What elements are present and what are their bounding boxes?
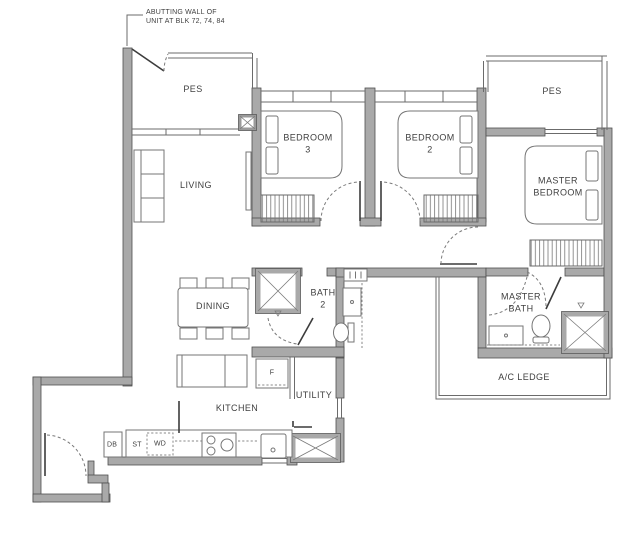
sofa [134, 150, 164, 222]
dining-chair [180, 278, 197, 289]
kitchen-sink [261, 434, 286, 458]
wardrobe-bedroom2 [424, 195, 478, 222]
pes-left-boundary [168, 53, 257, 88]
floor-trap-master-bath [578, 303, 584, 308]
pes-gate [132, 49, 168, 71]
bedroom2-door [381, 181, 420, 221]
room-label-ac-ledge: A/C LEDGE [498, 372, 550, 384]
utility-shaft [291, 434, 341, 463]
fixture-label-st: ST [132, 440, 141, 449]
room-label-pes-left: PES [183, 84, 202, 96]
fixture-label-db: DB [107, 440, 117, 449]
dining-chair [206, 278, 223, 289]
room-label-living: LIVING [180, 180, 212, 192]
floorplan-page: ABUTTING WALL OF UNIT AT BLK 72, 74, 84 … [0, 0, 640, 533]
bedroom3-door [321, 181, 360, 221]
floorplan-canvas [0, 0, 640, 533]
entrance-door [45, 433, 86, 476]
stove [202, 433, 236, 457]
room-label-bath2: BATH 2 [311, 287, 336, 310]
tv-console [246, 152, 251, 210]
room-label-bedroom2: BEDROOM 2 [405, 132, 454, 155]
room-label-bedroom3: BEDROOM 3 [283, 132, 332, 155]
room-label-dining: DINING [196, 301, 230, 313]
room-label-utility: UTILITY [296, 390, 332, 402]
mirror-cabinet [344, 269, 367, 281]
wall-duct-box [239, 115, 257, 131]
master-bedroom-door [440, 227, 478, 264]
fixture-label-wd: WD [154, 439, 166, 448]
room-label-master-bedroom: MASTER BEDROOM [533, 175, 582, 198]
bath2-door [268, 318, 313, 345]
toilet-bath2 [334, 323, 355, 342]
dining-chair [232, 328, 249, 339]
wardrobe-bedroom3 [261, 195, 314, 222]
wardrobe-master [530, 240, 602, 266]
shower-bath2 [256, 269, 301, 314]
room-label-pes-right: PES [542, 86, 561, 98]
dining-chair [232, 278, 249, 289]
dining-chair [206, 328, 223, 339]
kitchen-island-counter [177, 355, 247, 387]
fixture-label-fridge: F [270, 368, 274, 377]
annotation-leader [127, 15, 143, 46]
utility-door [293, 421, 312, 427]
toilet-master-bath [532, 315, 550, 343]
dining-chair [180, 328, 197, 339]
abutting-wall-annotation: ABUTTING WALL OF UNIT AT BLK 72, 74, 84 [146, 8, 225, 27]
room-label-kitchen: KITCHEN [216, 403, 258, 415]
room-label-master-bath: MASTER BATH [501, 291, 541, 314]
shower-master-bath [562, 312, 609, 354]
